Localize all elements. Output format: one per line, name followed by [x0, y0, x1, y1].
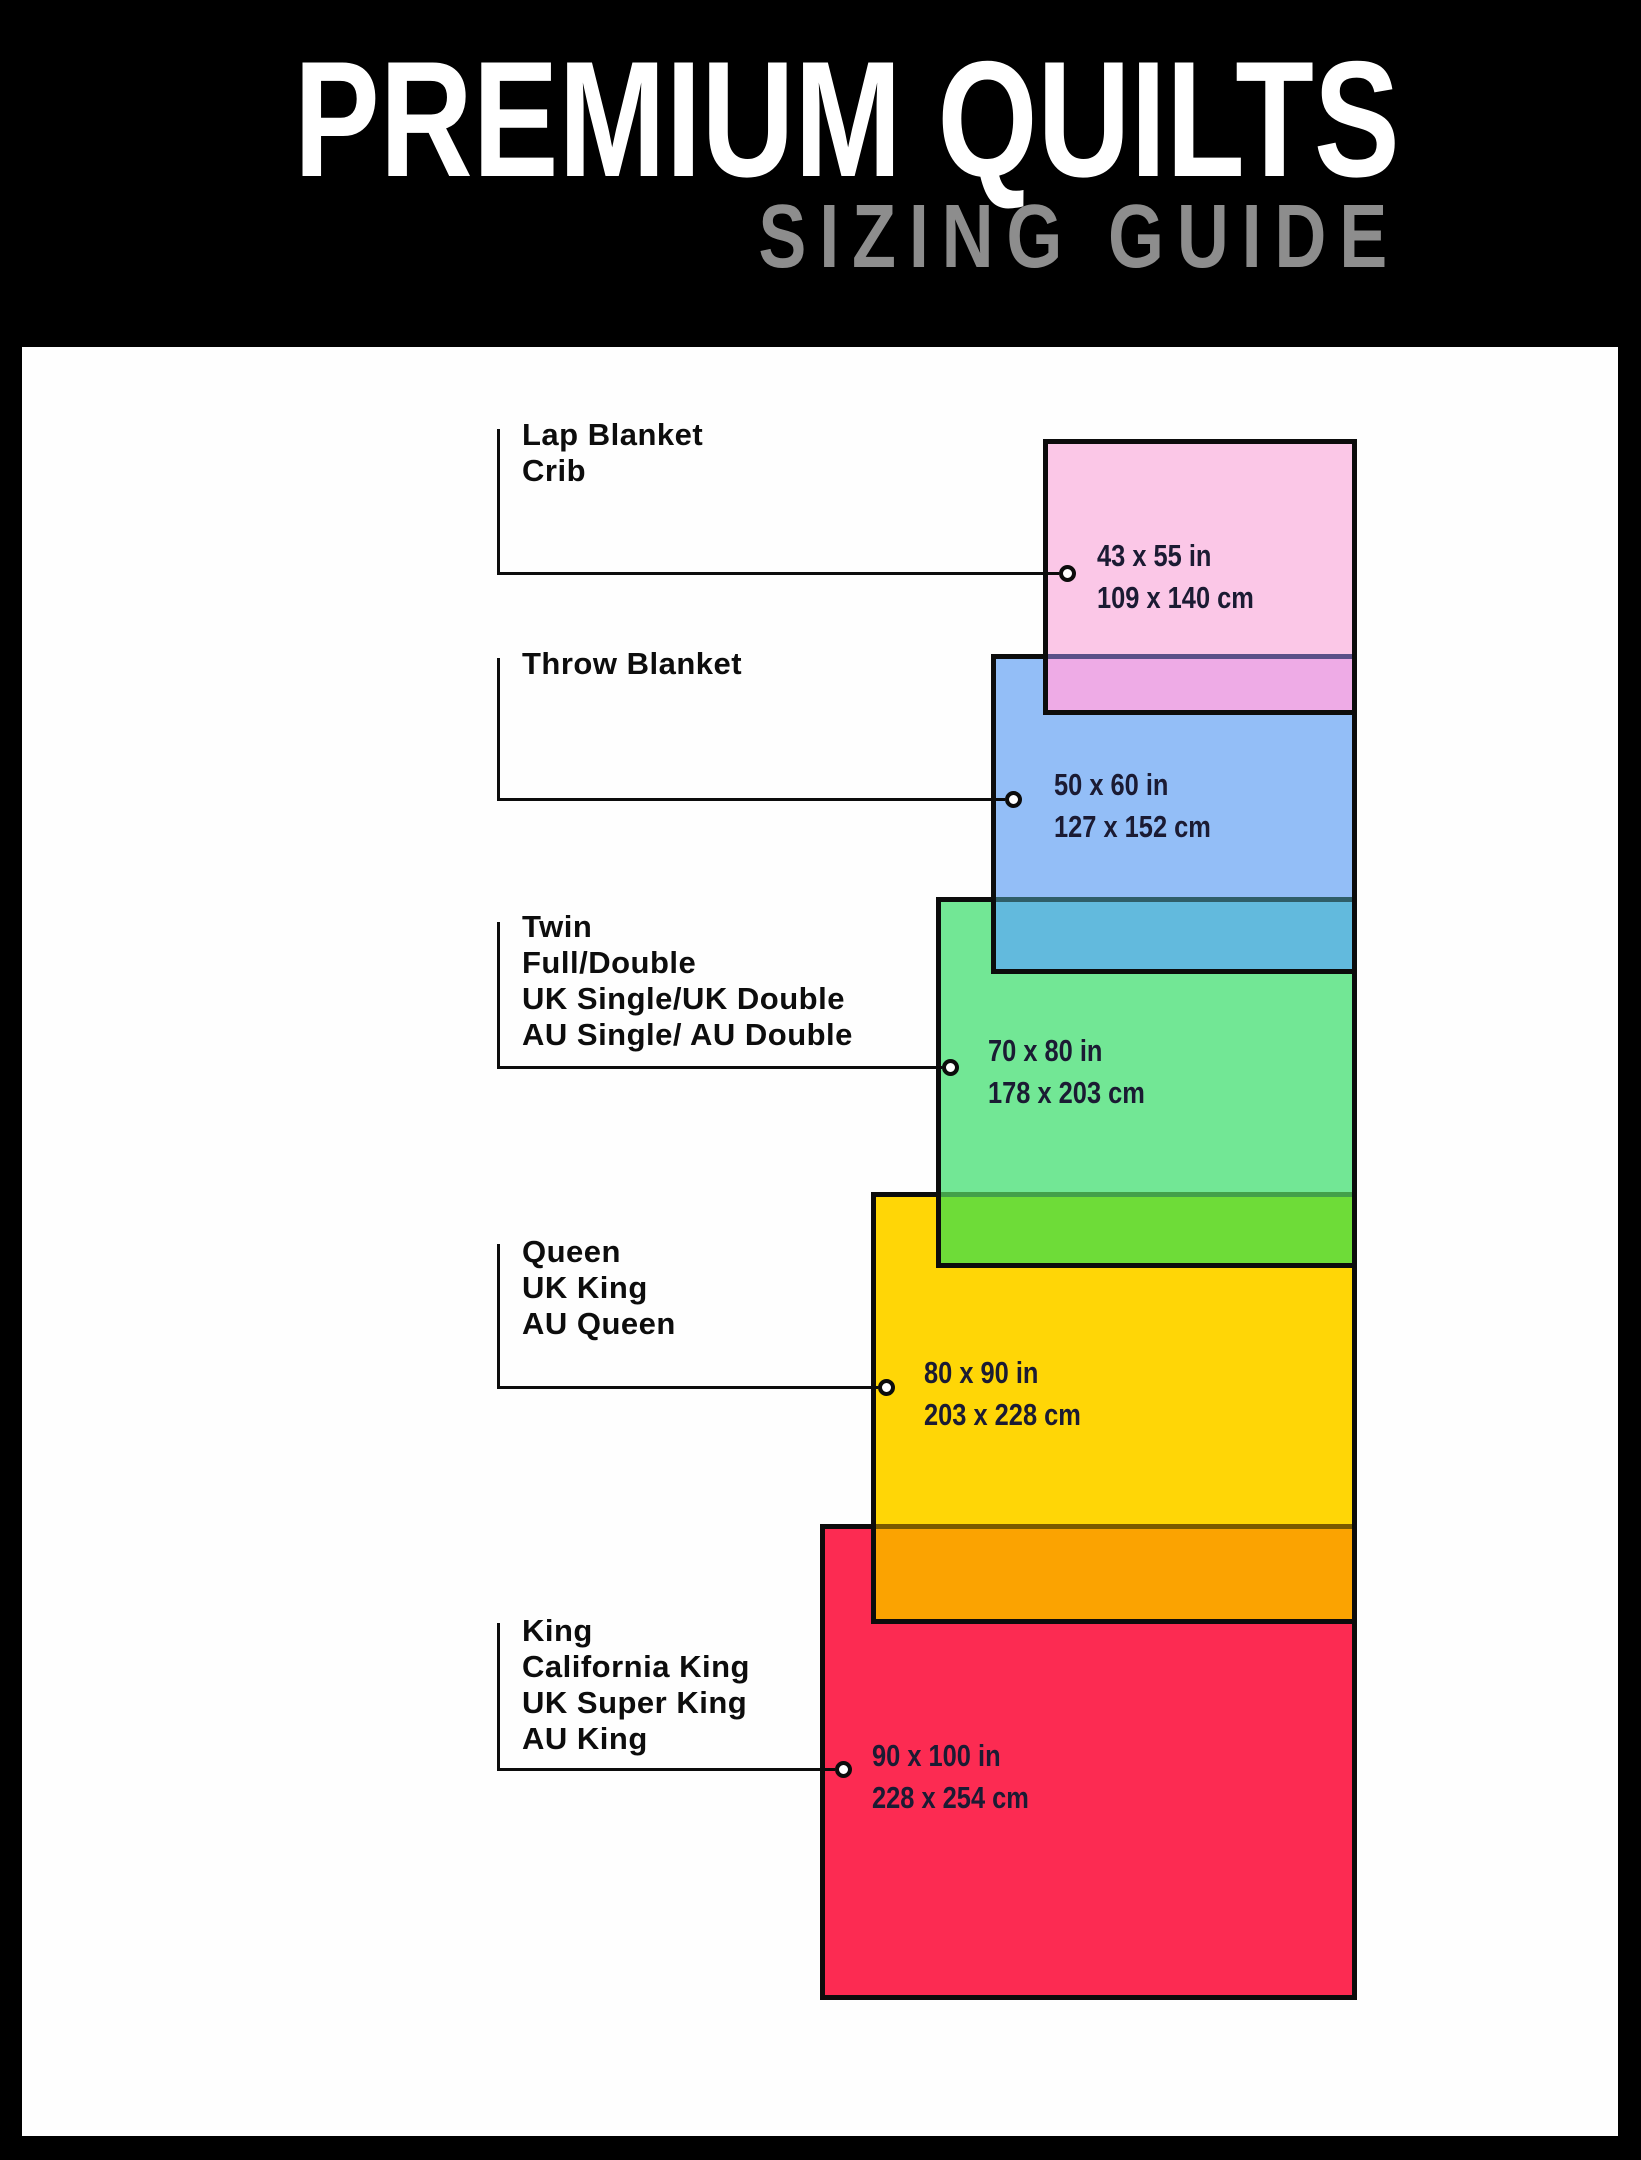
- connector-hline-twin: [497, 1066, 942, 1069]
- category-line: AU Single/ AU Double: [522, 1017, 853, 1053]
- category-line: Twin: [522, 909, 853, 945]
- category-line: Crib: [522, 453, 703, 489]
- category-line: King: [522, 1613, 750, 1649]
- category-line: UK Super King: [522, 1685, 750, 1721]
- category-line: UK King: [522, 1270, 676, 1306]
- poster-canvas: PREMIUM QUILTS SIZING GUIDE Lap Blanket …: [0, 0, 1641, 2160]
- size-label-lap-crib: 43 x 55 in 109 x 140 cm: [1097, 535, 1254, 619]
- overlap-band-lap-throw: [1048, 654, 1352, 710]
- category-line: Lap Blanket: [522, 417, 703, 453]
- size-label-throw: 50 x 60 in 127 x 152 cm: [1054, 764, 1211, 848]
- size-inches: 70 x 80 in: [988, 1030, 1145, 1072]
- category-line: UK Single/UK Double: [522, 981, 853, 1017]
- page-title: PREMIUM QUILTS: [294, 37, 1400, 202]
- category-line: AU Queen: [522, 1306, 676, 1342]
- size-label-queen: 80 x 90 in 203 x 228 cm: [924, 1352, 1081, 1436]
- overlap-band-twin-queen: [941, 1192, 1352, 1263]
- size-label-king: 90 x 100 in 228 x 254 cm: [872, 1735, 1029, 1819]
- category-label-king: King California King UK Super King AU Ki…: [522, 1613, 750, 1757]
- connector-dot-king: [835, 1761, 852, 1778]
- category-label-queen: Queen UK King AU Queen: [522, 1234, 676, 1342]
- size-inches: 80 x 90 in: [924, 1352, 1081, 1394]
- size-inches: 90 x 100 in: [872, 1735, 1029, 1777]
- category-line: Throw Blanket: [522, 646, 742, 682]
- connector-hline-throw: [497, 798, 1005, 801]
- connector-dot-queen: [878, 1379, 895, 1396]
- size-label-twin: 70 x 80 in 178 x 203 cm: [988, 1030, 1145, 1114]
- connector-hline-lap: [497, 572, 1059, 575]
- size-cm: 127 x 152 cm: [1054, 806, 1211, 848]
- category-line: AU King: [522, 1721, 750, 1757]
- category-line: Full/Double: [522, 945, 853, 981]
- size-cm: 109 x 140 cm: [1097, 577, 1254, 619]
- category-label-lap-crib: Lap Blanket Crib: [522, 417, 703, 489]
- category-label-twin: Twin Full/Double UK Single/UK Double AU …: [522, 909, 853, 1053]
- page-subtitle: SIZING GUIDE: [758, 192, 1400, 282]
- size-inches: 43 x 55 in: [1097, 535, 1254, 577]
- connector-vline-queen: [497, 1244, 500, 1388]
- connector-dot-twin: [942, 1059, 959, 1076]
- connector-dot-throw: [1005, 791, 1022, 808]
- size-inches: 50 x 60 in: [1054, 764, 1211, 806]
- overlap-band-throw-twin: [996, 897, 1352, 969]
- connector-vline-king: [497, 1623, 500, 1770]
- connector-dot-lap: [1059, 565, 1076, 582]
- connector-vline-lap: [497, 429, 500, 574]
- size-cm: 228 x 254 cm: [872, 1777, 1029, 1819]
- connector-hline-queen: [497, 1386, 878, 1389]
- category-line: Queen: [522, 1234, 676, 1270]
- connector-vline-throw: [497, 658, 500, 800]
- category-label-throw: Throw Blanket: [522, 646, 742, 682]
- connector-vline-twin: [497, 922, 500, 1068]
- category-line: California King: [522, 1649, 750, 1685]
- overlap-band-queen-king: [876, 1524, 1352, 1619]
- size-cm: 178 x 203 cm: [988, 1072, 1145, 1114]
- connector-hline-king: [497, 1768, 835, 1771]
- size-cm: 203 x 228 cm: [924, 1394, 1081, 1436]
